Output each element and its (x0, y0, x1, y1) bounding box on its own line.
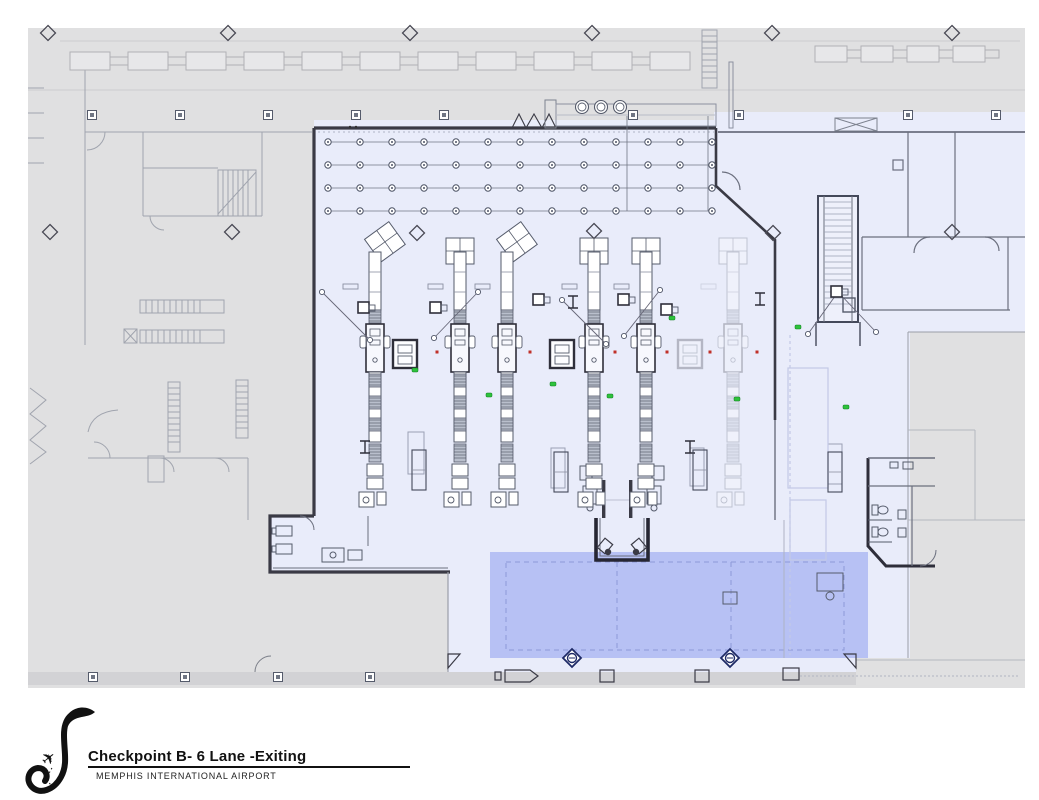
xray-machine (366, 324, 384, 372)
xray-machine (451, 324, 469, 372)
operator-desk (491, 492, 506, 507)
feed-conveyor (588, 252, 600, 310)
exit-lane-overlay (490, 552, 868, 658)
feed-conveyor (501, 252, 513, 310)
green-status-marker (843, 405, 849, 409)
conveyor-rollers (369, 444, 381, 462)
conveyor-rollers (588, 444, 600, 462)
airport-logo: ✈ (28, 707, 95, 790)
recompose-table (367, 478, 383, 489)
logo-flag (64, 707, 95, 726)
xray-machine (498, 324, 516, 372)
recompose-table (499, 464, 515, 476)
stanchion-post (873, 329, 878, 334)
floor-plan-drawing: ✈ (0, 0, 1039, 800)
body-scanner-booth (678, 340, 702, 368)
feed-conveyor (369, 252, 381, 310)
operator-desk (648, 492, 657, 505)
queue-sign (430, 302, 441, 313)
counter-module (476, 52, 516, 70)
body-scanner-booth (393, 340, 417, 368)
conveyor-rollers (454, 444, 466, 462)
stanchion-post (431, 335, 436, 340)
queue-sign (661, 304, 672, 315)
xray-machine (724, 324, 742, 372)
operator-desk (735, 492, 744, 505)
queue-sign (358, 302, 369, 313)
xray-machine (637, 324, 655, 372)
conveyor-rollers (640, 444, 652, 462)
floor-plan-sheet: ✈ Checkpoint B- 6 Lane -Exiting MEMPHIS … (0, 0, 1039, 800)
recompose-table (586, 478, 602, 489)
round-column (595, 101, 608, 114)
ceiling-dot (349, 126, 351, 128)
green-status-marker (412, 368, 418, 372)
operator-desk (717, 492, 732, 507)
south-wall-band (28, 672, 856, 685)
operator-desk (578, 492, 593, 507)
counter-module (592, 52, 632, 70)
recompose-table (452, 478, 468, 489)
queue-sign (831, 286, 842, 297)
recompose-table (499, 478, 515, 489)
feed-conveyor (640, 252, 652, 310)
counter-module (861, 46, 893, 62)
counter-module (907, 46, 939, 62)
counter-module (534, 52, 574, 70)
queue-sign (533, 294, 544, 305)
counter-module (418, 52, 458, 70)
counter-module (128, 52, 168, 70)
round-column (576, 101, 589, 114)
body-scanner-booth (550, 340, 574, 368)
conveyor-rollers (501, 444, 513, 462)
feed-conveyor (727, 252, 739, 310)
recompose-table (586, 464, 602, 476)
red-status-marker (756, 351, 759, 354)
red-status-marker (666, 351, 669, 354)
green-status-marker (550, 382, 556, 386)
red-status-marker (529, 351, 532, 354)
green-status-marker (607, 394, 613, 398)
green-status-marker (669, 316, 675, 320)
recompose-table (725, 478, 741, 489)
recompose-table (638, 464, 654, 476)
red-status-marker (709, 351, 712, 354)
sheet-subtitle: MEMPHIS INTERNATIONAL AIRPORT (96, 771, 508, 781)
operator-desk (462, 492, 471, 505)
counter-module (650, 52, 690, 70)
stanchion-post (475, 289, 480, 294)
title-block: Checkpoint B- 6 Lane -Exiting MEMPHIS IN… (88, 748, 508, 781)
counter-module (953, 46, 985, 62)
stanchion-post (367, 337, 372, 342)
ticket-counter-row (70, 52, 690, 70)
feed-conveyor (454, 252, 466, 310)
counter-module (360, 52, 400, 70)
stanchion-post (603, 341, 608, 346)
stanchion-post (657, 287, 662, 292)
operator-desk (630, 492, 645, 507)
green-status-marker (795, 325, 801, 329)
xray-machine (585, 324, 603, 372)
title-underline (88, 766, 410, 768)
sheet-title: Checkpoint B- 6 Lane -Exiting (88, 748, 508, 765)
conveyor-rollers (727, 444, 739, 462)
queue-sign (618, 294, 629, 305)
southwest-room (270, 516, 448, 572)
operator-desk (444, 492, 459, 507)
stanchion-post (621, 333, 626, 338)
counter-module (186, 52, 226, 70)
green-status-marker (734, 397, 740, 401)
green-status-marker (486, 393, 492, 397)
recompose-table (367, 464, 383, 476)
operator-desk (359, 492, 374, 507)
operator-desk (509, 492, 518, 505)
counter-module (302, 52, 342, 70)
red-status-marker (614, 351, 617, 354)
recompose-table (725, 464, 741, 476)
counter-module (815, 46, 847, 62)
ticket-counter-row (815, 46, 999, 62)
red-status-marker (436, 351, 439, 354)
counter-module (70, 52, 110, 70)
operator-desk (377, 492, 386, 505)
stanchion-post (805, 331, 810, 336)
recompose-table (638, 478, 654, 489)
logo-swoosh (28, 712, 86, 791)
recompose-table (452, 464, 468, 476)
round-column (614, 101, 627, 114)
ceiling-dot (355, 126, 357, 128)
operator-desk (596, 492, 605, 505)
stanchion-post (319, 289, 324, 294)
stanchion-post (559, 297, 564, 302)
counter-module (244, 52, 284, 70)
